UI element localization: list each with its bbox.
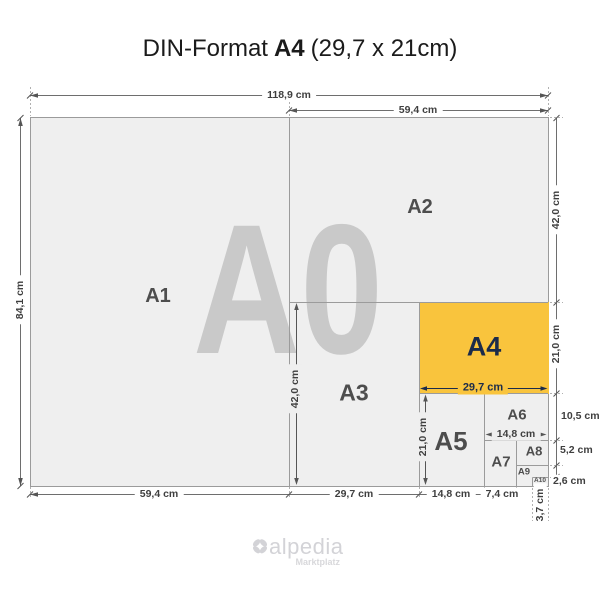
dim-a0-height: 84,1 cm	[14, 276, 27, 325]
logo-wordmark: alpedia	[269, 536, 343, 558]
dim-a8-height: 5,2 cm	[558, 444, 595, 457]
dim-a5-height: 21,0 cm	[417, 413, 430, 462]
title-format-bold: A4	[274, 36, 305, 62]
dim-a1-width: 59,4 cm	[135, 488, 184, 501]
label-a2: A2	[407, 197, 433, 217]
dim-a4-width: 29,7 cm	[458, 382, 508, 395]
dim-a10-height: 2,6 cm	[551, 475, 588, 488]
dim-a3-width: 29,7 cm	[330, 488, 379, 501]
label-a7: A7	[491, 455, 510, 470]
alpedia-logo: alpedia Marktplatz	[252, 536, 372, 576]
dim-a0-width: 118,9 cm	[262, 89, 316, 102]
title-size-suffix: (29,7 x 21cm)	[311, 36, 458, 62]
dim-a3-height: 42,0 cm	[289, 365, 302, 414]
dim-a2-height: 42,0 cm	[550, 186, 563, 235]
dim-a9-width: 3,7 cm	[534, 484, 547, 527]
logo-tagline: Marktplatz	[269, 558, 340, 567]
label-a1: A1	[145, 286, 171, 306]
label-a9: A9	[518, 467, 530, 477]
label-a8: A8	[526, 445, 543, 458]
alpedia-flower-icon	[252, 538, 268, 555]
page-title: DIN-Format A4 (29,7 x 21cm)	[0, 36, 600, 62]
label-a5: A5	[434, 428, 467, 454]
dim-a2-width: 59,4 cm	[394, 104, 443, 117]
dim-a4-height: 21,0 cm	[550, 320, 563, 369]
label-a3: A3	[339, 382, 368, 405]
title-prefix: DIN-Format	[143, 36, 268, 62]
dim-a6-width: 14,8 cm	[492, 428, 541, 441]
label-a6: A6	[507, 408, 526, 423]
dim-a6-height: 10,5 cm	[559, 410, 600, 423]
dim-a7-width: 7,4 cm	[481, 488, 524, 501]
label-a4: A4	[467, 334, 502, 361]
dim-a5-width: 14,8 cm	[427, 488, 476, 501]
din-a4-format-diagram: DIN-Format A4 (29,7 x 21cm) A0	[0, 0, 600, 600]
